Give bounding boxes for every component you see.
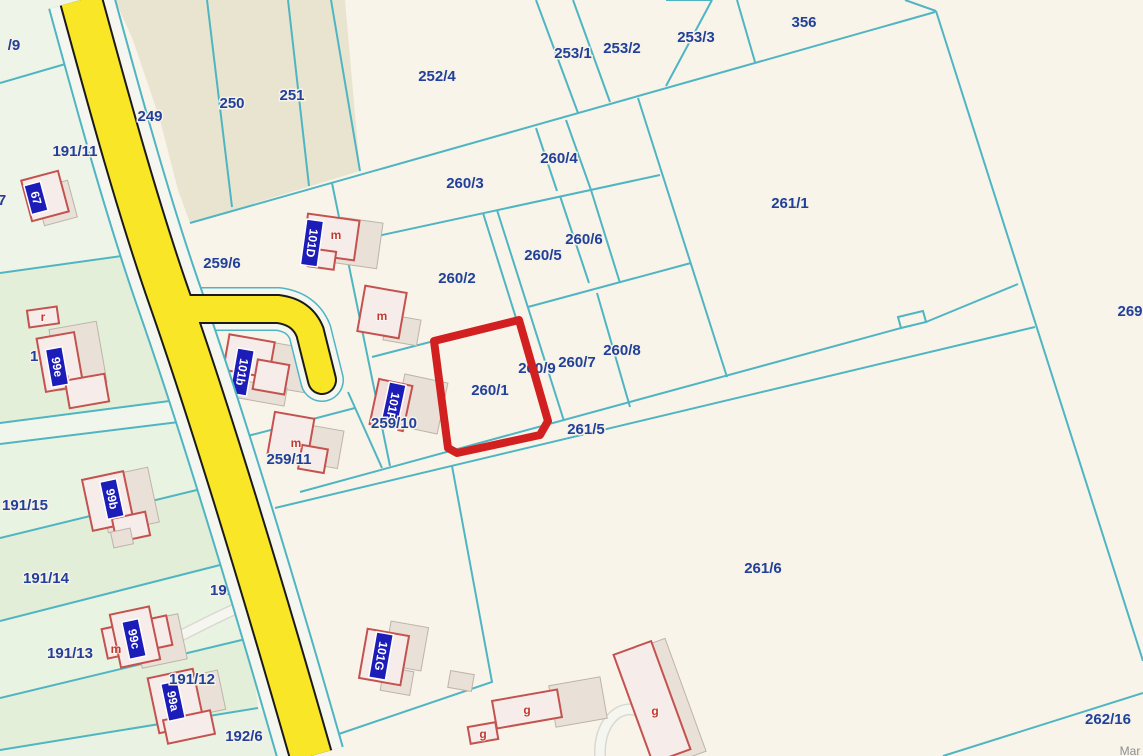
building-g-small: g <box>468 722 499 744</box>
building-letter-r: r <box>41 310 46 324</box>
parcel-label-260-7: 260/7 <box>558 354 596 371</box>
parcel-label-253-1: 253/1 <box>554 45 592 62</box>
parcel-label-252-4: 252/4 <box>418 68 456 85</box>
parcel-label-260-5: 260/5 <box>524 247 562 264</box>
parcel-label-191-13: 191/13 <box>47 645 93 662</box>
building-letter-g-medium: g <box>523 703 530 717</box>
parcel-label-260-2: 260/2 <box>438 270 476 287</box>
parcel-label-191-9: /9 <box>8 37 21 54</box>
parcel-label-259-11: 259/11 <box>266 451 311 468</box>
building-letter-g-small: g <box>479 727 486 741</box>
parcel-label-260-6: 260/6 <box>565 231 603 248</box>
building-r: r <box>27 306 59 327</box>
building-letter-m-101d: m <box>331 228 342 242</box>
parcel-label-250: 250 <box>219 95 244 112</box>
parcel-label-191-12: 191/12 <box>169 671 215 688</box>
map-canvas[interactable]: 191/17 191/16 259/8 3 260/9 67 r <box>0 0 1143 756</box>
parcel-label-251: 251 <box>279 87 304 104</box>
parcel-label-259-6: 259/6 <box>203 255 241 272</box>
parcel-label-260-3: 260/3 <box>446 175 484 192</box>
parcel-label-261-6: 261/6 <box>744 560 782 577</box>
building-letter-g-large: g <box>651 704 658 718</box>
parcel-label-260-8: 260/8 <box>603 342 641 359</box>
parcel-label-262-16: 262/16 <box>1085 711 1131 728</box>
parcel-label-191-14: 191/14 <box>23 570 70 587</box>
map-viewport[interactable]: 191/17 191/16 259/8 3 260/9 67 r <box>0 0 1143 756</box>
parcel-label-261-1: 261/1 <box>771 195 809 212</box>
parcel-label-259-10: 259/10 <box>371 415 417 432</box>
parcel-label-192-6: 192/6 <box>225 728 263 745</box>
parcel-label-253-2: 253/2 <box>603 40 641 57</box>
map-attribution: Mar <box>1120 744 1141 756</box>
parcel-label-191-7: /7 <box>0 192 6 209</box>
parcel-label-260-4: 260/4 <box>540 150 578 167</box>
parcel-label-249: 249 <box>137 108 162 125</box>
building-letter-m-259-11: m <box>291 436 302 450</box>
parcel-label-356: 356 <box>791 14 816 31</box>
building-letter-m-259-8: m <box>377 309 388 323</box>
parcel-label-260-1: 260/1 <box>471 382 509 399</box>
building-letter-m-99c: m <box>111 642 122 656</box>
parcel-label-191-15: 191/15 <box>2 497 48 514</box>
parcel-label-253-3: 253/3 <box>677 29 715 46</box>
parcel-label-269: 269 <box>1117 303 1142 320</box>
parcel-label-261-5: 261/5 <box>567 421 605 438</box>
building-101d: m 101D <box>300 214 383 270</box>
parcel-label-191-11: 191/11 <box>52 143 97 160</box>
